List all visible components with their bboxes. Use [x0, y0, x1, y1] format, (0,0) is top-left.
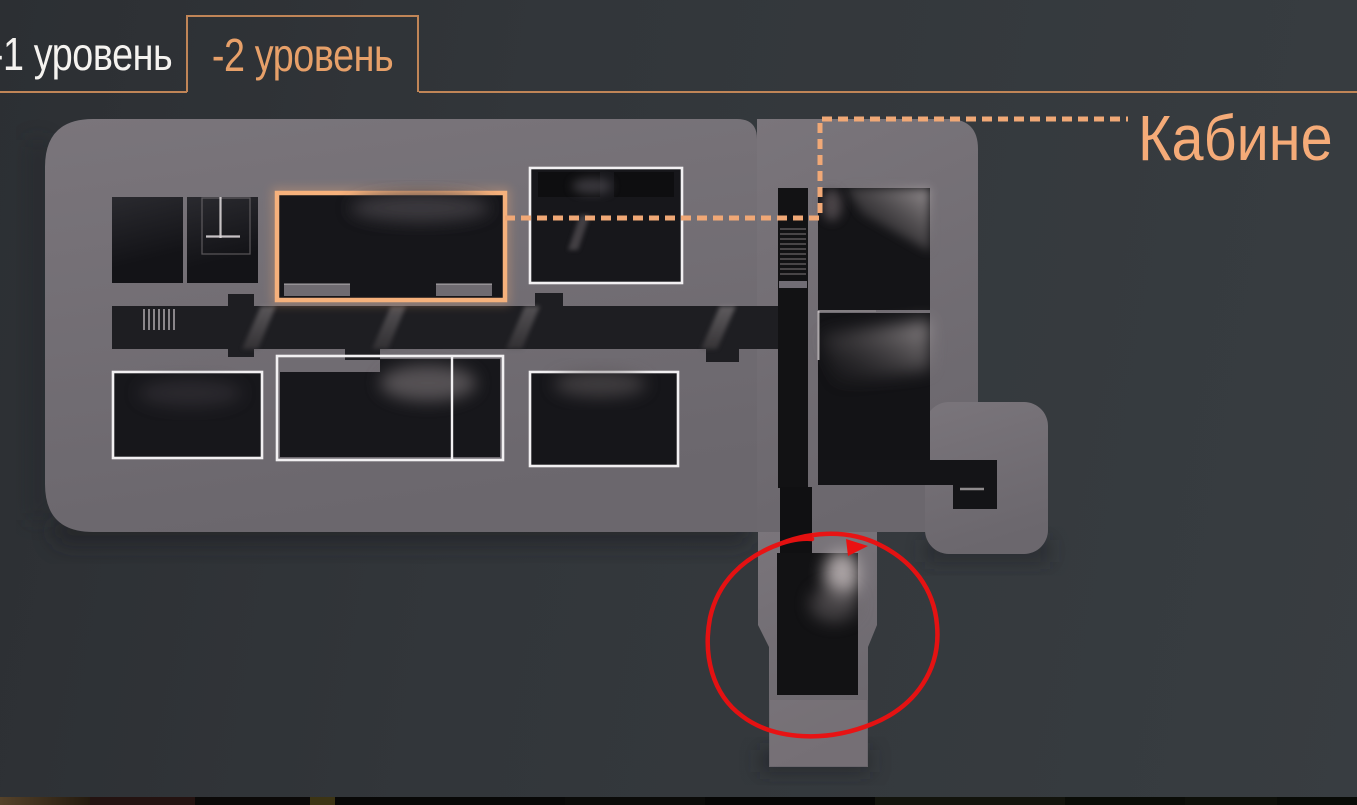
- room-top-left-1: [112, 197, 183, 283]
- stairs-left: [144, 309, 174, 330]
- tab-level-minus-2[interactable]: -2 уровень: [186, 15, 419, 92]
- tab-label: -2 уровень: [212, 28, 393, 82]
- tab-level-minus-1[interactable]: -1 уровень: [0, 15, 186, 92]
- next-image-edge: [0, 797, 1357, 805]
- orange-outline-room[interactable]: [277, 193, 505, 300]
- room-outline-top[interactable]: [530, 168, 682, 283]
- tabbar-underline-left: [0, 91, 187, 93]
- red-circle-room: [777, 550, 860, 695]
- room-callout-label: Кабине: [1138, 106, 1333, 170]
- tab-label: -1 уровень: [0, 27, 173, 81]
- room-top-left-2: [187, 197, 258, 283]
- room-outline-bottom-3[interactable]: [530, 371, 678, 466]
- map-viewer-screen: -1 уровень -2 уровень Кабине: [0, 0, 1357, 805]
- wing-corridor: [778, 188, 812, 555]
- room-outline-bottom-1[interactable]: [113, 372, 262, 458]
- tabbar-underline-right: [419, 91, 1357, 93]
